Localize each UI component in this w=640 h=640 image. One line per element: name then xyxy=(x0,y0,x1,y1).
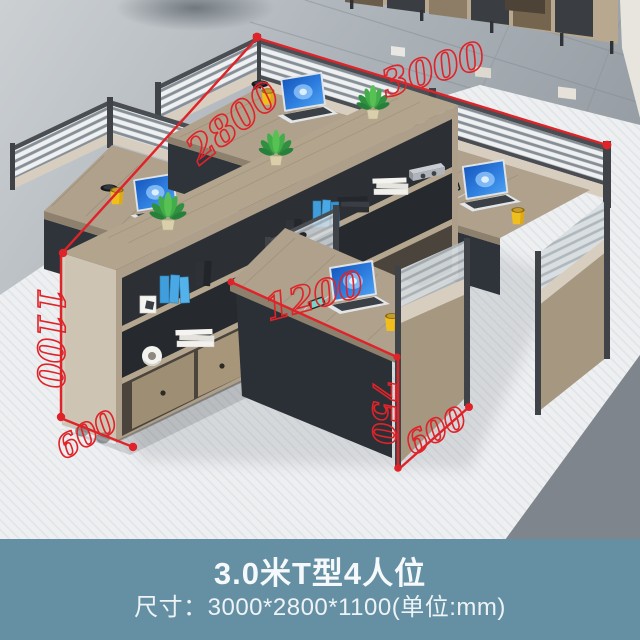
product-photo: 3000 2800 1200 1100 750 600 600 3.0米T型4人… xyxy=(0,0,640,640)
keyhole xyxy=(219,363,224,368)
workstation-illustration: 3000 2800 1200 1100 750 600 600 xyxy=(0,0,640,540)
tape-roll xyxy=(142,346,162,366)
product-size-line: 尺寸：3000*2800*1100(单位:mm) xyxy=(134,595,506,621)
book-stack-dark xyxy=(337,196,369,212)
book-stack-white xyxy=(175,329,214,347)
keyhole xyxy=(160,390,165,395)
coffee-cup xyxy=(110,187,123,204)
coffee-cup xyxy=(511,207,524,224)
caption-banner: 3.0米T型4人位 尺寸：3000*2800*1100(单位:mm) xyxy=(0,539,640,640)
picture-frame xyxy=(140,296,156,313)
book-stack xyxy=(372,177,408,194)
binders-blue-left xyxy=(160,275,190,303)
dimension-label-1100: 1100 xyxy=(29,288,71,388)
product-title: 3.0米T型4人位 xyxy=(214,557,426,591)
dimension-label-750: 750 xyxy=(365,380,401,445)
